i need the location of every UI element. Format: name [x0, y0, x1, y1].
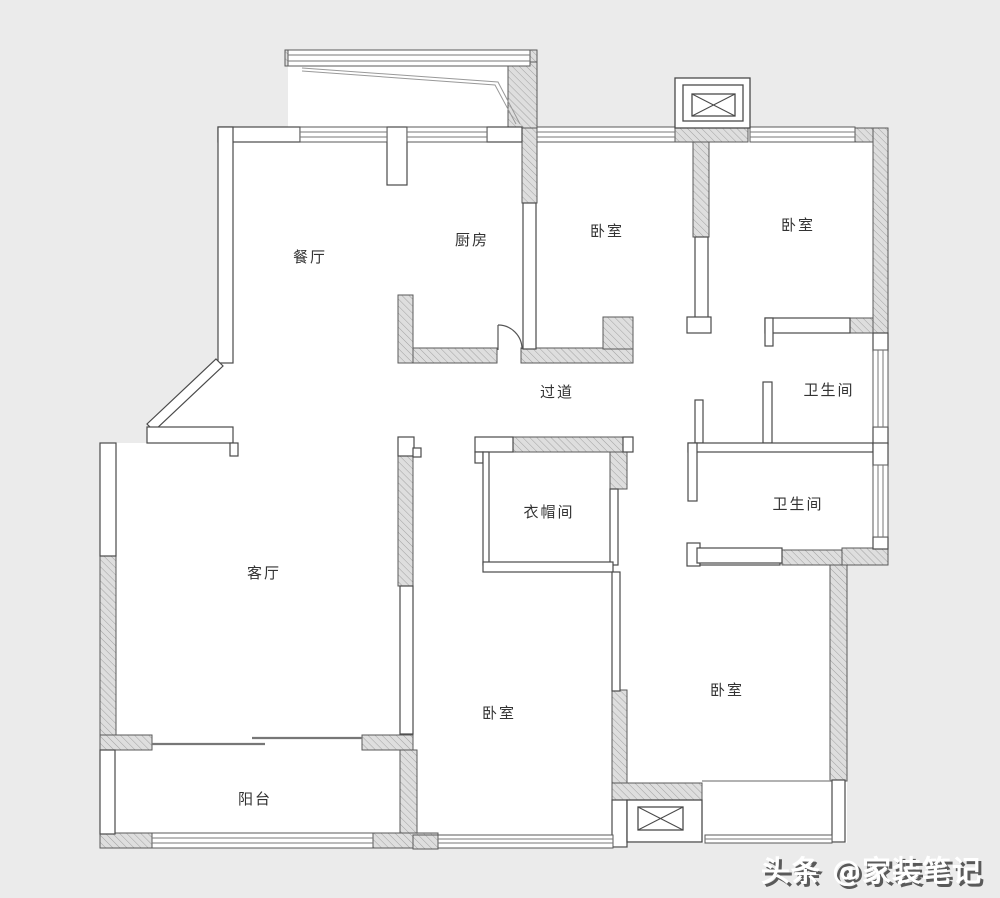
room-label-hallway: 过道 [540, 383, 574, 401]
floorplan-page: 餐厅 厨房 卧室 卧室 过道 卫生间 衣帽间 卫生间 客厅 卧室 卧室 阳台 头… [0, 0, 1000, 898]
room-label-living: 客厅 [247, 564, 281, 582]
window-bathroom-bottom [873, 465, 888, 537]
elevator-shaft-icon [638, 807, 683, 830]
window-balcony [152, 833, 373, 848]
window-bedroom-bottom-middle [438, 835, 613, 848]
window-bedroom-bottom-right [705, 835, 832, 843]
window-bedroom-top-middle [537, 127, 675, 142]
room-label-dining: 餐厅 [293, 248, 327, 266]
room-label-balcony: 阳台 [238, 790, 272, 808]
room-label-bathroom-bottom: 卫生间 [772, 495, 823, 513]
room-label-bedroom-bottom-right: 卧室 [710, 681, 744, 699]
window-dining [300, 127, 387, 142]
watermark-text: 头条 @家装笔记 [761, 854, 982, 888]
window-bathroom-top [873, 350, 888, 427]
room-label-bedroom-bottom-middle: 卧室 [482, 704, 516, 722]
room-label-cloakroom: 衣帽间 [523, 503, 574, 521]
room-label-kitchen: 厨房 [455, 231, 489, 249]
elevator-shaft-icon [692, 94, 735, 116]
window-kitchen [407, 127, 487, 142]
room-label-bedroom-top-middle: 卧室 [590, 222, 624, 240]
room-label-bedroom-top-right: 卧室 [781, 216, 815, 234]
floor-plan-svg: 餐厅 厨房 卧室 卧室 过道 卫生间 衣帽间 卫生间 客厅 卧室 卧室 阳台 头… [0, 0, 1000, 898]
elevator-shaft-bottom [627, 800, 702, 842]
room-label-bathroom-top: 卫生间 [803, 381, 854, 399]
watermark: 头条 @家装笔记 头条 @家装笔记 [761, 854, 985, 891]
window-bedroom-top-right [750, 127, 855, 142]
elevator-shaft-top [675, 78, 750, 128]
